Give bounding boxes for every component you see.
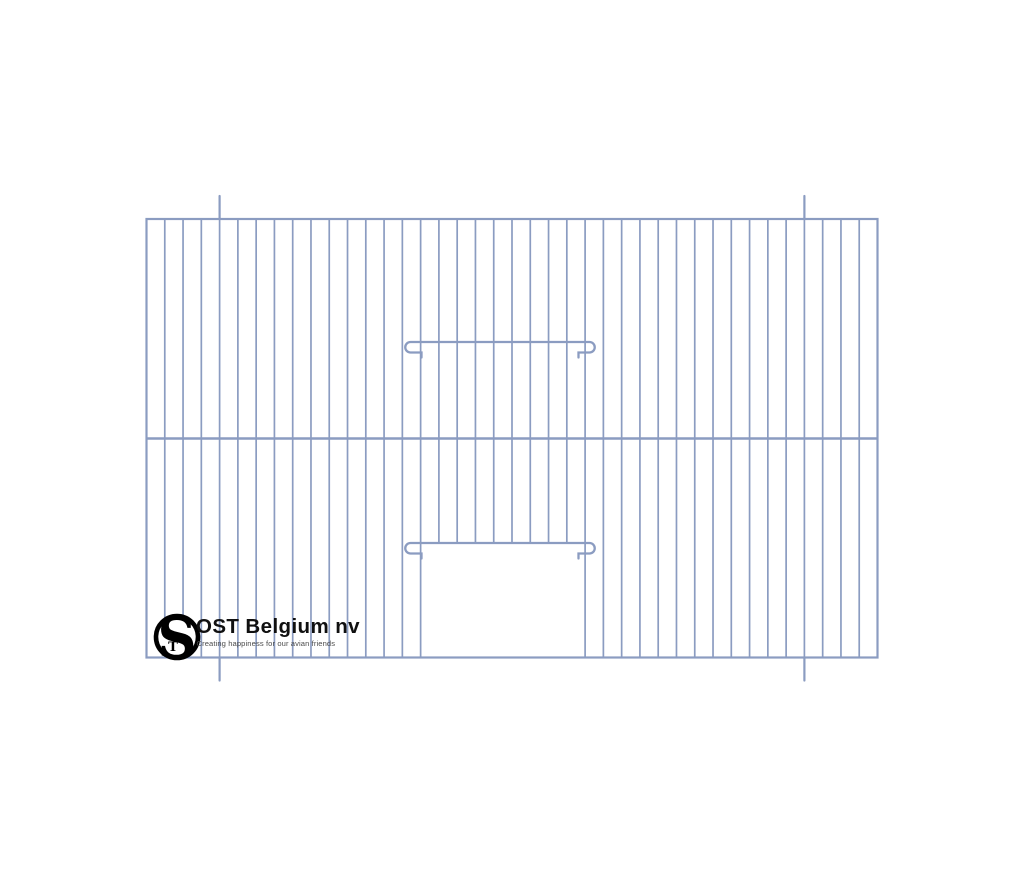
door-hook-bar (405, 543, 595, 559)
cage-front-drawing (0, 0, 1024, 878)
logo-letter-s: S (158, 606, 197, 670)
brand-logo: S T OST Belgium nv Creating happiness fo… (145, 605, 405, 665)
company-name: OST Belgium nv (196, 617, 360, 638)
drawing-canvas: S T OST Belgium nv Creating happiness fo… (0, 0, 1024, 878)
logo-letter-t: T (168, 640, 178, 655)
company-tagline: Creating happiness for our avian friends (197, 640, 336, 648)
